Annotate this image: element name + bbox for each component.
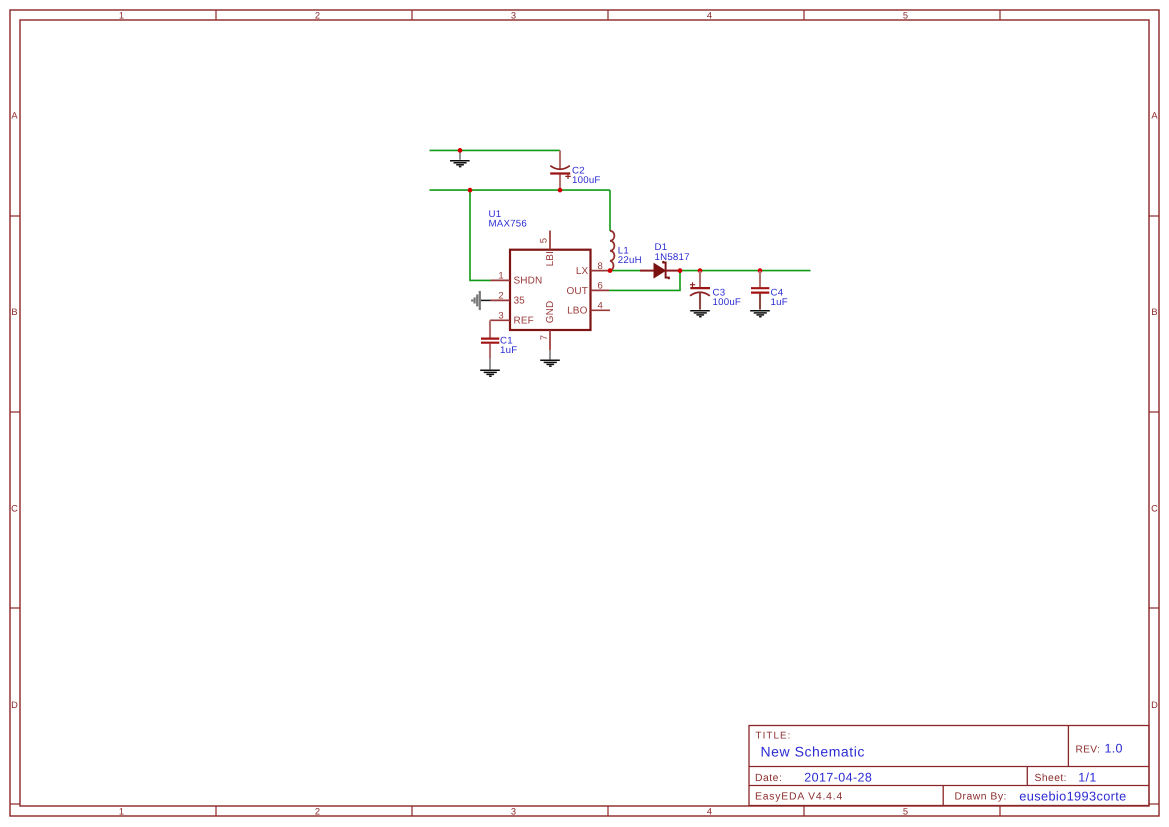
svg-text:1N5817: 1N5817 (655, 252, 690, 263)
svg-text:B: B (1151, 307, 1157, 317)
svg-text:GND: GND (545, 301, 556, 324)
svg-text:C: C (1151, 504, 1158, 514)
svg-text:Drawn By:: Drawn By: (955, 792, 1007, 803)
svg-text:LBO: LBO (567, 306, 587, 317)
svg-text:1: 1 (498, 271, 503, 282)
svg-text:2: 2 (315, 807, 320, 817)
svg-text:1: 1 (119, 807, 124, 817)
svg-text:SHDN: SHDN (514, 276, 543, 287)
svg-text:4: 4 (598, 301, 603, 312)
svg-text:3: 3 (498, 311, 503, 322)
svg-text:D: D (1151, 700, 1158, 710)
svg-text:TITLE:: TITLE: (756, 730, 792, 741)
svg-text:EasyEDA V4.4.4: EasyEDA V4.4.4 (755, 792, 843, 803)
svg-text:35: 35 (514, 296, 526, 307)
svg-text:4: 4 (707, 807, 712, 817)
svg-text:22uH: 22uH (618, 255, 642, 266)
svg-text:8: 8 (598, 261, 603, 272)
svg-text:eusebio1993corte: eusebio1993corte (1019, 788, 1126, 803)
svg-text:Sheet:: Sheet: (1035, 773, 1067, 784)
svg-text:5: 5 (903, 807, 908, 817)
svg-text:5: 5 (538, 238, 549, 243)
svg-text:LBI: LBI (545, 251, 556, 266)
svg-text:2: 2 (498, 291, 503, 302)
svg-text:B: B (11, 307, 17, 317)
svg-text:Date:: Date: (755, 773, 782, 784)
svg-text:New Schematic: New Schematic (761, 744, 865, 760)
svg-text:REV:: REV: (1076, 744, 1101, 755)
svg-text:A: A (11, 111, 18, 121)
svg-text:A: A (1151, 111, 1158, 121)
svg-text:6: 6 (598, 281, 603, 292)
svg-text:4: 4 (707, 11, 712, 21)
svg-text:OUT: OUT (567, 286, 588, 297)
svg-text:REF: REF (514, 316, 534, 327)
svg-text:MAX756: MAX756 (489, 218, 527, 229)
svg-text:1: 1 (119, 11, 124, 21)
svg-text:1.0: 1.0 (1105, 742, 1123, 756)
svg-text:1uF: 1uF (771, 297, 788, 308)
svg-text:3: 3 (511, 807, 516, 817)
svg-text:100uF: 100uF (572, 175, 601, 186)
svg-text:5: 5 (903, 11, 908, 21)
svg-text:2: 2 (315, 11, 320, 21)
svg-text:C: C (11, 504, 18, 514)
svg-text:100uF: 100uF (713, 297, 742, 308)
svg-text:LX: LX (576, 266, 589, 277)
svg-text:1uF: 1uF (500, 345, 517, 356)
svg-text:2017-04-28: 2017-04-28 (804, 770, 872, 784)
svg-text:7: 7 (539, 335, 550, 340)
svg-text:D: D (11, 700, 18, 710)
svg-text:3: 3 (511, 11, 516, 21)
svg-text:1/1: 1/1 (1078, 770, 1096, 784)
